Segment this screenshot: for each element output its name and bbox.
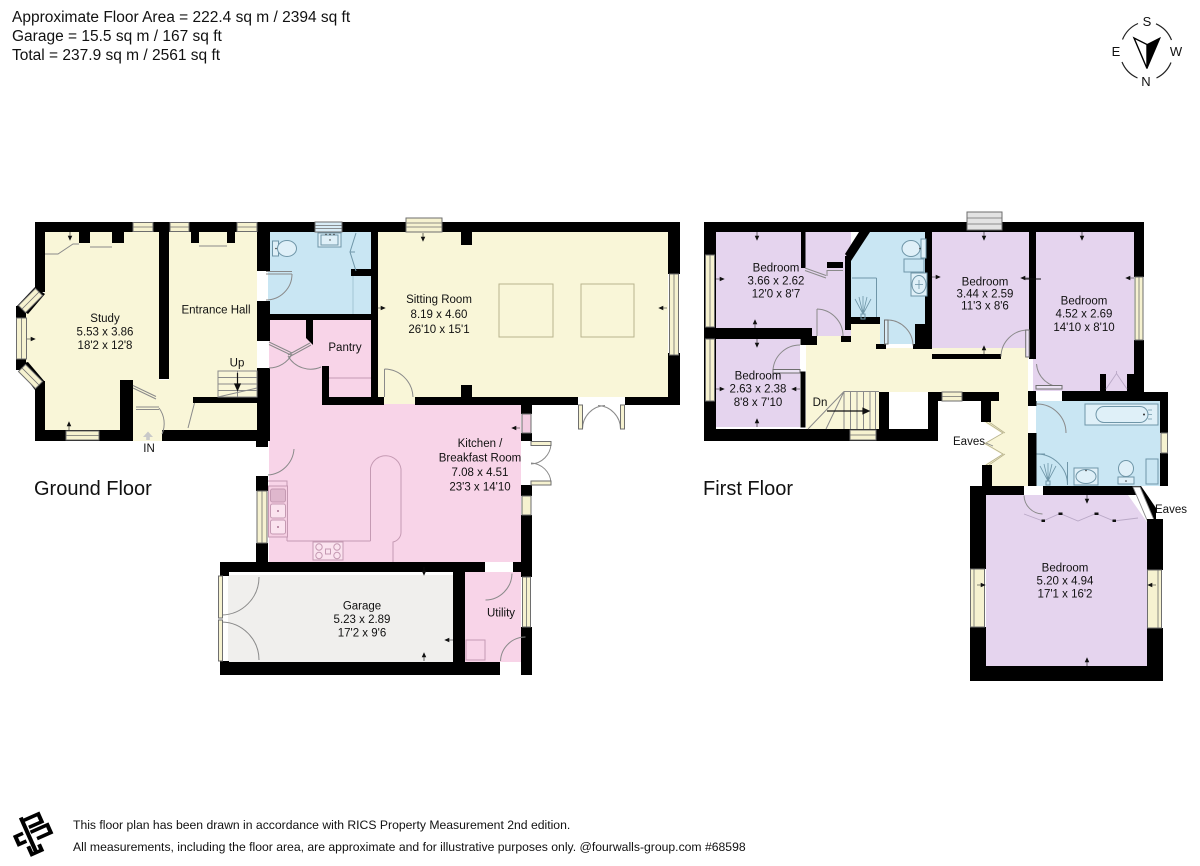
svg-text:Approximate Floor Area = 222.4: Approximate Floor Area = 222.4 sq m / 23…	[12, 9, 351, 26]
svg-text:11'3 x 8'6: 11'3 x 8'6	[961, 301, 1009, 313]
svg-text:All measurements, including th: All measurements, including the floor ar…	[73, 840, 746, 854]
svg-text:W: W	[1170, 44, 1183, 59]
svg-text:8'8 x 7'10: 8'8 x 7'10	[734, 397, 783, 409]
svg-text:Up: Up	[230, 358, 245, 370]
svg-text:Ground Floor: Ground Floor	[34, 478, 152, 500]
svg-text:Pantry: Pantry	[328, 342, 361, 354]
svg-text:Bedroom: Bedroom	[1061, 296, 1108, 308]
svg-text:Bedroom: Bedroom	[962, 277, 1009, 289]
svg-text:5.23 x 2.89: 5.23 x 2.89	[334, 614, 391, 626]
svg-text:Eaves: Eaves	[953, 436, 985, 448]
svg-text:Dn: Dn	[813, 397, 828, 409]
svg-text:17'2 x 9'6: 17'2 x 9'6	[338, 628, 387, 640]
svg-text:17'1 x 16'2: 17'1 x 16'2	[1038, 589, 1093, 601]
svg-text:N: N	[1141, 74, 1150, 89]
svg-text:E: E	[1112, 44, 1121, 59]
svg-text:23'3 x 14'10: 23'3 x 14'10	[449, 482, 510, 494]
svg-text:Bedroom: Bedroom	[753, 263, 800, 275]
svg-text:12'0 x 8'7: 12'0 x 8'7	[752, 289, 801, 301]
svg-text:3.66 x 2.62: 3.66 x 2.62	[748, 276, 805, 288]
svg-text:5.53 x 3.86: 5.53 x 3.86	[77, 327, 134, 339]
svg-text:Garage = 15.5 sq m / 167 sq ft: Garage = 15.5 sq m / 167 sq ft	[12, 28, 222, 45]
svg-text:Entrance Hall: Entrance Hall	[181, 305, 250, 317]
svg-text:Bedroom: Bedroom	[735, 371, 782, 383]
svg-text:14'10 x 8'10: 14'10 x 8'10	[1053, 322, 1114, 334]
svg-text:Sitting Room: Sitting Room	[406, 294, 472, 306]
svg-text:Utility: Utility	[487, 608, 515, 620]
svg-text:18'2 x 12'8: 18'2 x 12'8	[78, 340, 133, 352]
svg-text:Breakfast Room: Breakfast Room	[439, 453, 521, 465]
svg-text:This floor plan has been drawn: This floor plan has been drawn in accord…	[73, 818, 570, 832]
svg-text:IN: IN	[143, 443, 155, 455]
svg-text:First Floor: First Floor	[703, 478, 793, 500]
svg-text:8.19 x 4.60: 8.19 x 4.60	[411, 309, 468, 321]
svg-text:2.63 x 2.38: 2.63 x 2.38	[730, 384, 787, 396]
svg-text:Study: Study	[90, 313, 120, 325]
svg-text:Kitchen /: Kitchen /	[458, 438, 504, 450]
svg-text:S: S	[1143, 14, 1152, 29]
svg-text:26'10 x 15'1: 26'10 x 15'1	[408, 324, 469, 336]
svg-text:Bedroom: Bedroom	[1042, 563, 1089, 575]
svg-text:Total = 237.9 sq m / 2561 sq f: Total = 237.9 sq m / 2561 sq ft	[12, 47, 221, 64]
svg-text:Garage: Garage	[343, 601, 381, 613]
svg-text:7.08 x 4.51: 7.08 x 4.51	[452, 467, 509, 479]
svg-text:3.44 x 2.59: 3.44 x 2.59	[957, 289, 1014, 301]
svg-text:4.52 x 2.69: 4.52 x 2.69	[1056, 309, 1113, 321]
svg-text:5.20 x 4.94: 5.20 x 4.94	[1037, 576, 1095, 588]
svg-text:Eaves: Eaves	[1155, 504, 1187, 516]
